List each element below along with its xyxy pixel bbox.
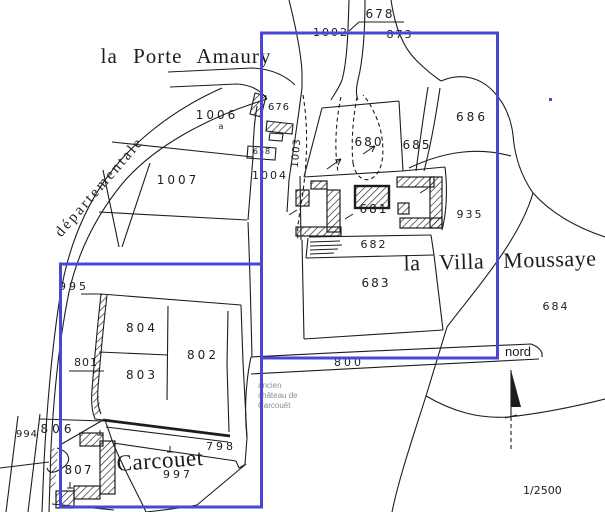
label-802: 802 xyxy=(187,349,219,361)
label-681: 681 xyxy=(360,203,389,215)
label-804: 804 xyxy=(126,322,158,334)
north-label: nord xyxy=(505,345,531,358)
label-682: 682 xyxy=(361,239,388,250)
annotation-line-1: ancien xyxy=(258,381,298,391)
label-1006: 1006 xyxy=(196,109,239,121)
label-1007: 1007 xyxy=(157,174,200,186)
label-801: 801 xyxy=(74,357,98,368)
label-1006a: a xyxy=(219,123,224,131)
label-658: 658 xyxy=(253,148,271,156)
label-1004: 1004 xyxy=(252,170,288,181)
label-departementale: départementale xyxy=(53,135,147,240)
label-678: 678 xyxy=(366,8,395,20)
label-873: 873 xyxy=(387,29,414,40)
annotation-line-2: château de xyxy=(258,391,298,401)
label-995: 995 xyxy=(59,281,89,292)
label-680: 680 xyxy=(355,136,384,148)
scale-label: 1/2500 xyxy=(523,485,562,496)
label-994: 994 xyxy=(16,430,38,440)
label-935: 935 xyxy=(457,209,484,220)
annotation-ancien-chateau: ancien château de Carcouët xyxy=(258,381,298,411)
label-porte-amaury: la Porte Amaury xyxy=(101,46,272,67)
label-carcouet: Carcouet xyxy=(116,446,204,475)
label-1003: 1003 xyxy=(291,138,304,168)
label-685: 685 xyxy=(403,139,432,151)
label-676: 676 xyxy=(268,103,290,113)
label-villa-moussaye: la Villa Moussaye xyxy=(403,247,596,274)
label-686: 686 xyxy=(456,111,488,123)
label-806: 806 xyxy=(41,423,76,435)
cadastral-map: ancien château de Carcouët nord 1/2500 6… xyxy=(0,0,605,512)
label-798: 798 xyxy=(206,441,236,452)
map-labels: ancien château de Carcouët nord 1/2500 6… xyxy=(0,0,605,512)
annotation-line-3: Carcouët xyxy=(258,401,298,411)
label-807: 807 xyxy=(65,464,94,476)
label-1002: 1002 xyxy=(313,27,349,38)
label-800: 800 xyxy=(334,357,364,368)
label-803: 803 xyxy=(126,369,158,381)
label-683: 683 xyxy=(362,277,391,289)
label-684: 684 xyxy=(543,301,570,312)
